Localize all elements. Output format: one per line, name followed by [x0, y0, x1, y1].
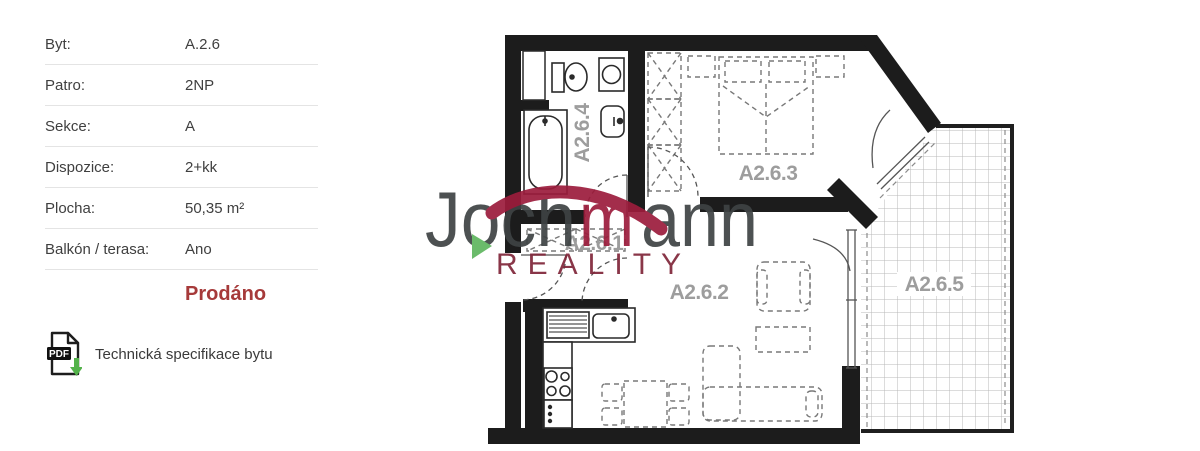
room-label-living: A2.6.2	[670, 281, 729, 304]
armchair	[757, 262, 810, 311]
page: Byt: A.2.6 Patro: 2NP Sekce: A Dispozice…	[0, 0, 1200, 451]
room-label-terrace: A2.6.5	[905, 273, 965, 296]
nightstand-right	[816, 56, 844, 77]
wall-kitchen-shaft	[525, 312, 543, 428]
room-label-bathroom: A2.6.4	[571, 103, 594, 163]
washing-machine	[599, 58, 624, 91]
kitchen-sink	[547, 312, 629, 338]
living-terrace-window	[813, 230, 857, 368]
coffee-table	[756, 327, 810, 352]
nightstand-left	[688, 56, 715, 77]
sofa	[703, 346, 822, 421]
living-terrace-door-swing	[813, 239, 850, 271]
floor-plan: A2.6.1 A2.6.2 A2.6.3 A2.6.4 A2.6.5 Joch …	[0, 0, 1200, 451]
bed	[719, 57, 813, 154]
bathroom-sink	[601, 106, 624, 137]
wall-diagonal	[857, 35, 941, 133]
toilet	[552, 63, 587, 92]
wall-bottom	[488, 428, 860, 444]
installation-shaft	[523, 51, 545, 100]
stove	[544, 368, 572, 400]
wall-top	[505, 35, 874, 51]
kitchen	[543, 308, 635, 428]
watermark: Joch m ann REALITY	[425, 175, 758, 281]
dining-set	[602, 381, 689, 427]
wall-right-lower	[842, 366, 860, 432]
bedroom-wardrobe	[648, 53, 681, 191]
kitchen-cabinet	[544, 400, 572, 428]
watermark-subtitle: REALITY	[496, 248, 691, 281]
